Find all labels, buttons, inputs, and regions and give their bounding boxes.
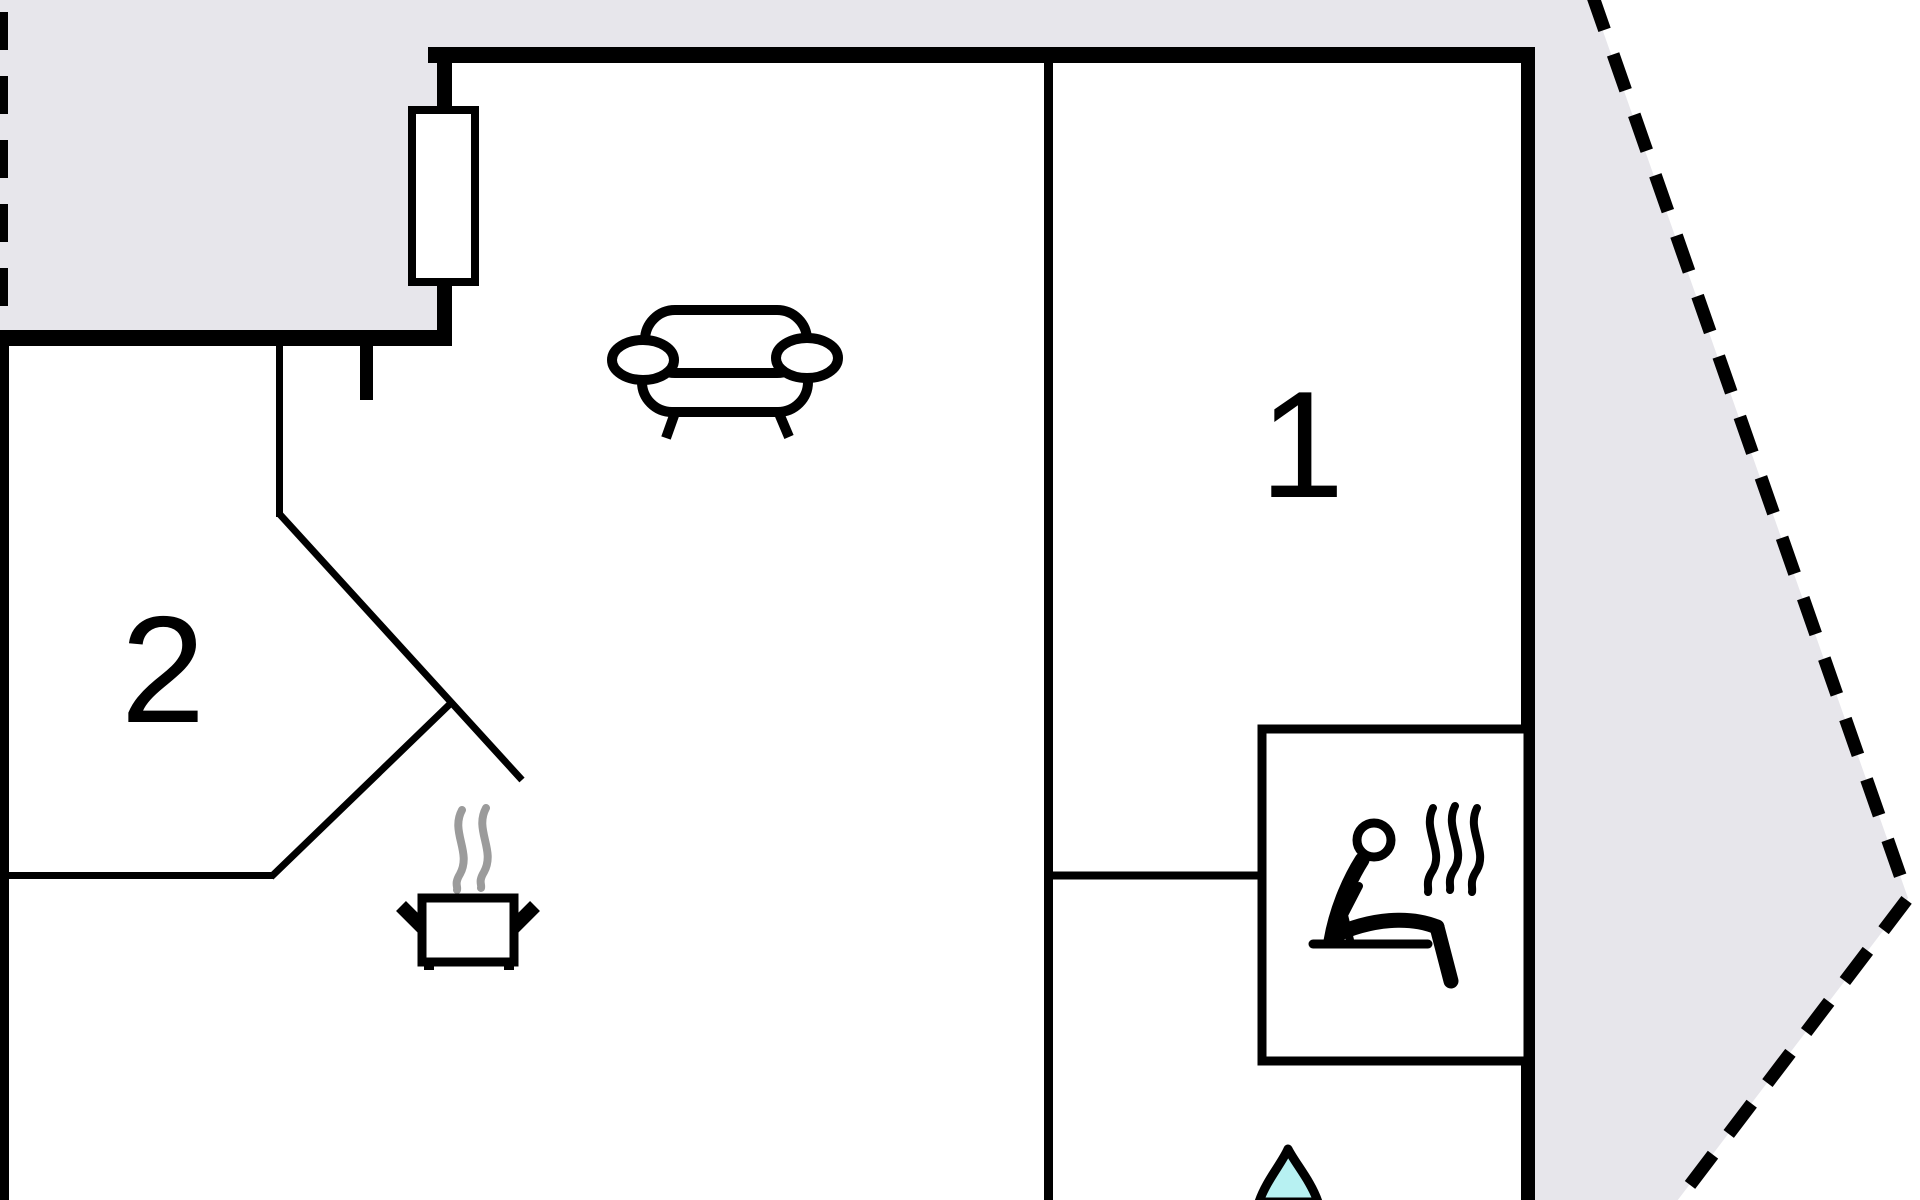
- steam-wave-2: [481, 808, 488, 888]
- pot-foot-left: [424, 962, 434, 970]
- wall-top: [428, 47, 1535, 63]
- wall-terrace-bottom: [0, 330, 452, 346]
- sofa-armrest-right: [776, 338, 838, 378]
- pot-body: [422, 898, 514, 962]
- sofa-armrest-left: [612, 340, 674, 380]
- cooking-pot-icon: [401, 808, 535, 970]
- sauna-box: [1262, 729, 1528, 1061]
- sauna-room: [1262, 729, 1528, 1061]
- wall-left-edge: [0, 330, 9, 1200]
- room-1-label: 1: [1260, 360, 1345, 530]
- sauna-person-head: [1357, 823, 1391, 857]
- terrace-door: [412, 110, 475, 282]
- pot-foot-right: [504, 962, 514, 970]
- floor-plan: 1 2: [0, 0, 1920, 1200]
- wall-diagonal-room2: [271, 703, 451, 877]
- room-2-label: 2: [121, 585, 206, 755]
- wall-diagonal-kitchen: [280, 514, 523, 780]
- steam-wave-1: [457, 810, 464, 890]
- sofa-icon: [612, 310, 838, 438]
- water-drop-icon: [1259, 1149, 1318, 1200]
- plot-outside-area: [428, 0, 1908, 1200]
- wall-stub: [360, 346, 373, 400]
- outside-areas: [0, 0, 1908, 1200]
- terrace-area: [0, 0, 452, 346]
